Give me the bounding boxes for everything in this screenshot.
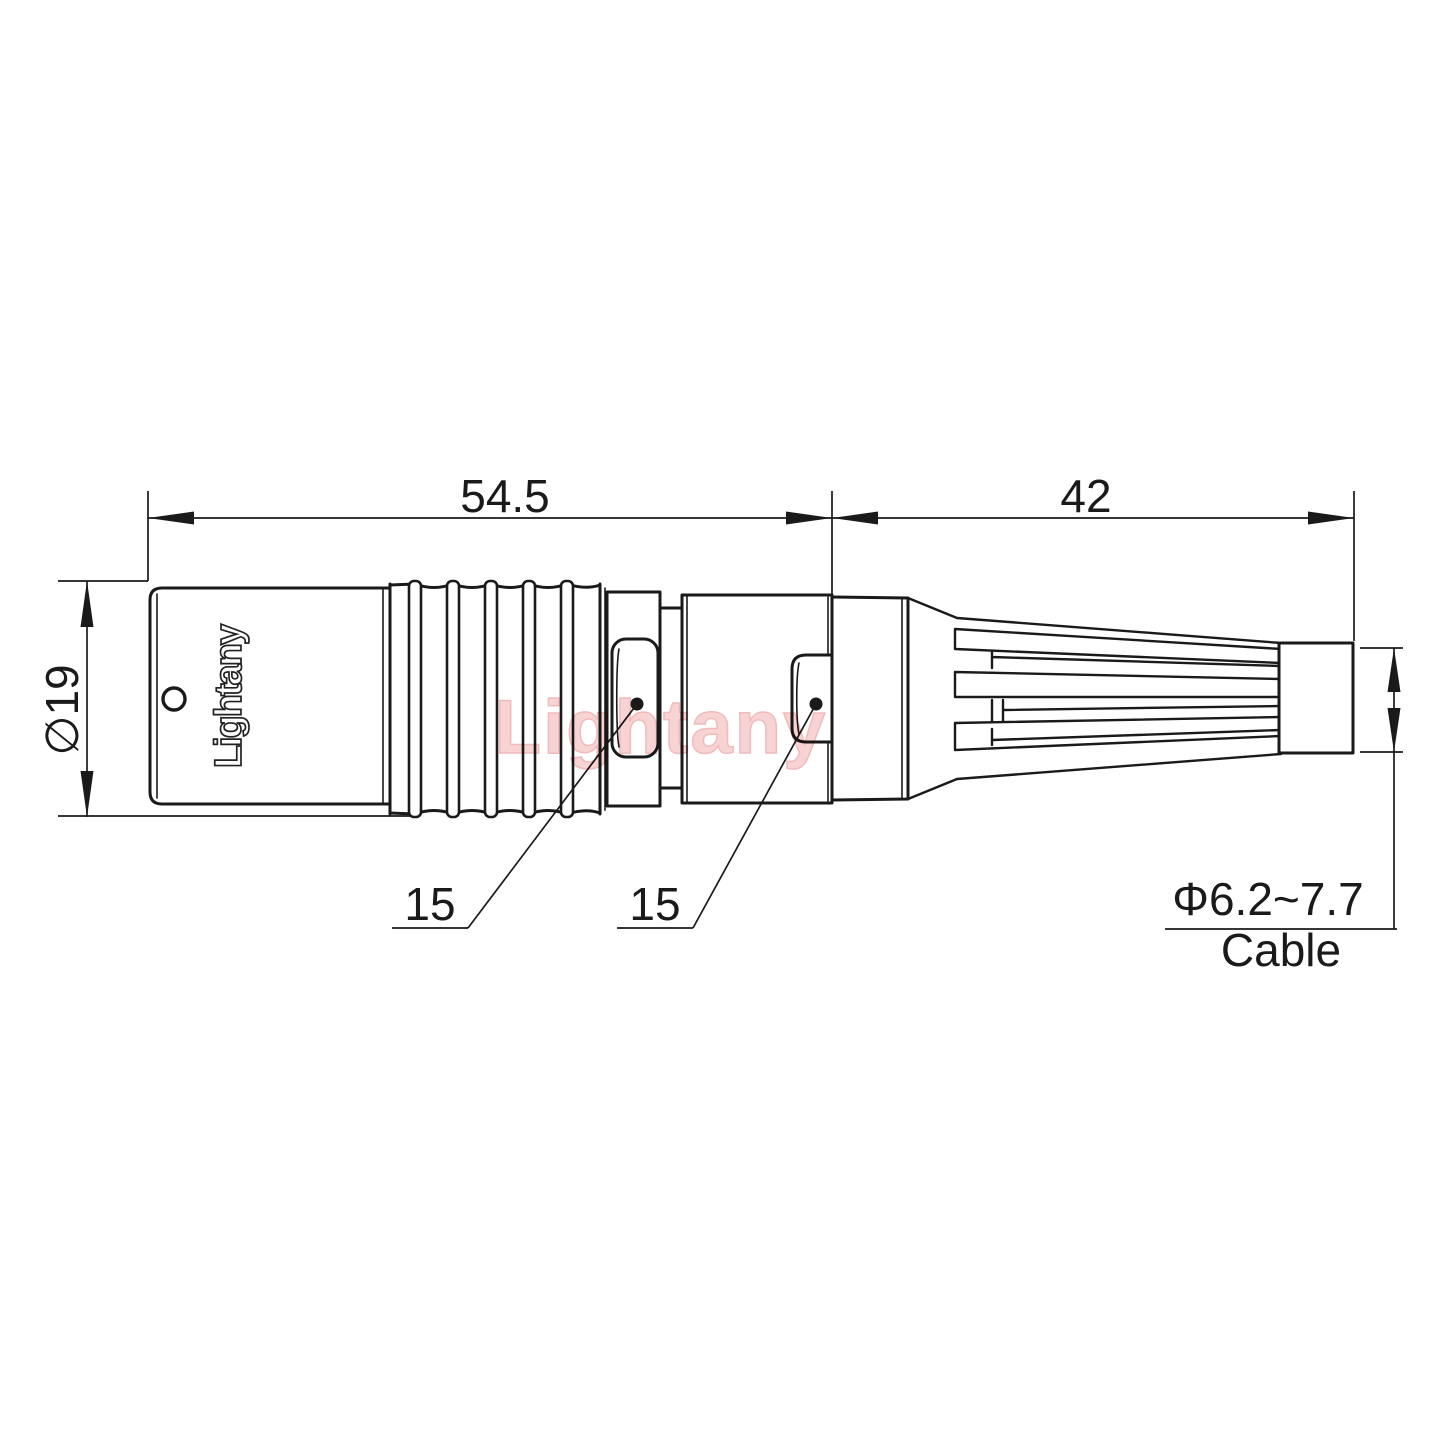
- watermark: Lightany: [495, 685, 828, 770]
- arrow-up-icon: [81, 581, 94, 627]
- boot-shoulder: [908, 598, 957, 799]
- grip-rib: [409, 581, 421, 817]
- back-length-value: 42: [1060, 470, 1111, 522]
- arrow-left-icon: [832, 512, 878, 525]
- arrow-right-icon: [1308, 512, 1354, 525]
- front-length-value: 54.5: [460, 470, 550, 522]
- strain-relief-boot: [908, 598, 1281, 799]
- cable-end: [1279, 643, 1353, 753]
- back-clamp-nut: [832, 597, 908, 800]
- arrow-down-icon: [81, 771, 94, 817]
- arrow-left-icon: [148, 512, 194, 525]
- cable-diameter-value: Φ6.2~7.7: [1172, 873, 1363, 925]
- boot-fin-lower: [955, 717, 1281, 750]
- cable-end-block: [1279, 643, 1353, 753]
- arrow-up-icon: [1388, 648, 1401, 692]
- body-diameter-value: ∅19: [36, 664, 88, 755]
- technical-drawing-page: Lightany: [0, 0, 1440, 1440]
- front-wrench-flat-value: 15: [404, 878, 455, 930]
- connector-technical-drawing: Lightany: [0, 0, 1440, 1440]
- grip-rib: [447, 581, 459, 817]
- arrow-down-icon: [1388, 708, 1401, 752]
- cable-label: Cable: [1221, 924, 1341, 976]
- boot-bottom-profile: [957, 754, 1281, 779]
- back-wrench-flat-value: 15: [629, 878, 680, 930]
- arrow-right-icon: [786, 512, 832, 525]
- back-nut-outline: [832, 597, 908, 800]
- brand-engraving: Lightany: [208, 624, 250, 768]
- front-shell: Lightany: [150, 588, 390, 804]
- boot-fin-middle: [955, 672, 1281, 697]
